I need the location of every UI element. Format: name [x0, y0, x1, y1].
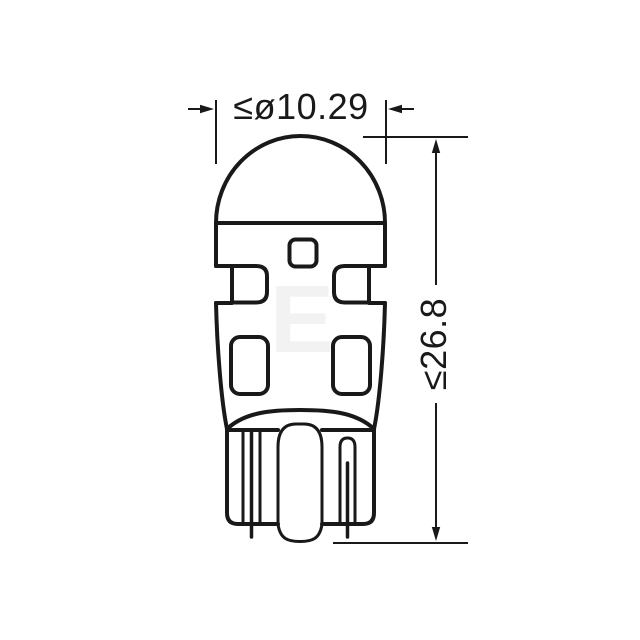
lower-body-right-edge	[374, 303, 385, 429]
diameter-arrowhead-left	[200, 105, 214, 113]
watermark: E	[270, 266, 334, 373]
diameter-dimension-label: ≤ø10.29	[233, 86, 368, 127]
glass-wedge-center	[278, 424, 322, 524]
side-led-window-right	[333, 337, 370, 394]
dome-cap	[216, 136, 385, 223]
front-led-window	[290, 240, 317, 267]
height-dimension-label: ≤26.8	[413, 298, 454, 390]
fin-tab-left	[232, 266, 267, 303]
fin-tab-right	[334, 266, 369, 303]
height-arrowhead-up	[432, 139, 440, 153]
height-dimension: ≤26.8	[333, 137, 468, 543]
lower-body-left-edge	[216, 303, 227, 429]
height-arrowhead-down	[432, 527, 440, 541]
body-bottom-arc	[227, 410, 374, 429]
side-led-window-left	[231, 337, 268, 394]
diagram-canvas: E	[0, 0, 640, 640]
diameter-dimension: ≤ø10.29	[188, 86, 414, 164]
diameter-arrowhead-right	[388, 105, 402, 113]
bulb-dimension-drawing: E	[0, 0, 640, 640]
watermark-letter: E	[270, 266, 334, 373]
glass-seal-bump	[278, 524, 322, 542]
